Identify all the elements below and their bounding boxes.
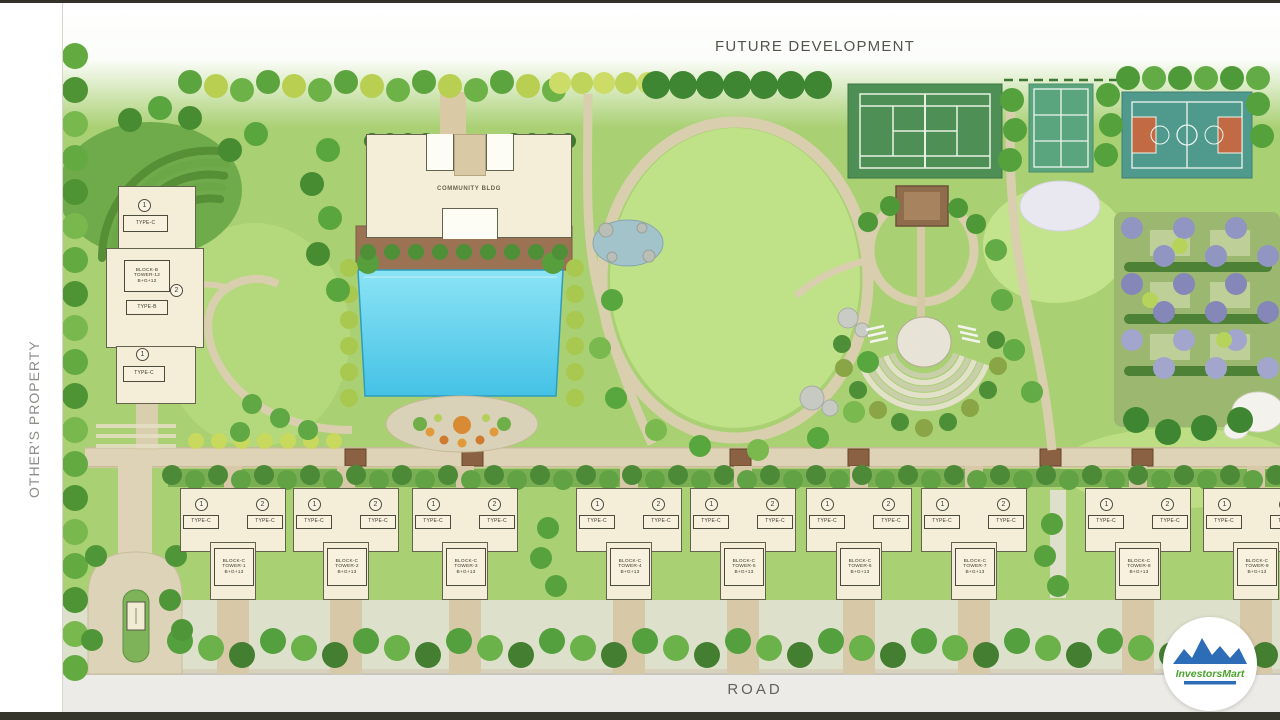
tower-block-label: BLOCK-CTOWER-9B+G+13 — [1237, 548, 1277, 586]
tree — [1225, 273, 1247, 295]
tree — [1168, 66, 1192, 90]
tree — [446, 628, 472, 654]
tree — [62, 485, 88, 511]
tree — [663, 635, 689, 661]
tree — [1153, 245, 1175, 267]
tree — [62, 383, 88, 409]
tree — [530, 547, 552, 569]
unit-marker: 2 — [997, 498, 1010, 511]
badminton-court — [1029, 84, 1093, 172]
tree — [843, 401, 865, 423]
driveway — [843, 592, 875, 674]
tree — [229, 642, 255, 668]
tree — [1047, 575, 1069, 597]
tree — [987, 331, 1005, 349]
tree — [723, 71, 751, 99]
pond — [593, 220, 663, 266]
tree — [553, 470, 573, 490]
tree — [1225, 217, 1247, 239]
tree — [528, 244, 544, 260]
building-notch — [442, 208, 498, 239]
unit-marker: 2 — [652, 498, 665, 511]
tree — [360, 74, 384, 98]
tree — [891, 413, 909, 431]
tower-block-label: BLOCK-CTOWER-6B+G+13 — [840, 548, 880, 586]
tree — [1142, 292, 1158, 308]
unit-marker: 1 — [936, 498, 949, 511]
unit-marker: 1 — [705, 498, 718, 511]
basketball-court — [1122, 92, 1252, 178]
tree — [178, 106, 202, 130]
tree — [967, 470, 987, 490]
tree — [1216, 332, 1232, 348]
tree — [537, 517, 559, 539]
tree — [566, 337, 584, 355]
letterbox-bottom — [0, 712, 1280, 720]
tree — [1194, 66, 1218, 90]
tree — [589, 337, 611, 359]
tree — [566, 285, 584, 303]
tree — [979, 381, 997, 399]
unit-type-label: TYPE-C — [360, 515, 396, 529]
tree — [280, 433, 296, 449]
tree — [392, 465, 412, 485]
tree — [566, 311, 584, 329]
tree — [260, 628, 286, 654]
tree — [326, 278, 350, 302]
tree — [242, 394, 262, 414]
tower-block-label: BLOCK-B TOWER-12 B+G+12 — [124, 260, 170, 292]
tree — [645, 419, 667, 441]
tower-building: 12TYPE-CTYPE-CBLOCK-CTOWER-3B+G+13 — [412, 488, 518, 600]
tree — [1220, 66, 1244, 90]
tree — [360, 244, 376, 260]
tree — [230, 422, 250, 442]
unit-type-label: TYPE-C — [1270, 515, 1280, 529]
tree — [340, 363, 358, 381]
tree — [566, 363, 584, 381]
tree — [62, 145, 88, 171]
tree — [545, 575, 567, 597]
tower-building: 12TYPE-CTYPE-CBLOCK-CTOWER-4B+G+13 — [576, 488, 682, 600]
tree — [998, 148, 1022, 172]
tree — [849, 635, 875, 661]
tree — [1128, 635, 1154, 661]
unit-marker: 1 — [1218, 498, 1231, 511]
driveway — [1122, 592, 1154, 674]
tree — [353, 628, 379, 654]
tower-block-label: BLOCK-CTOWER-8B+G+13 — [1119, 548, 1159, 586]
tree — [1041, 513, 1063, 535]
tower-building: 12TYPE-CTYPE-CBLOCK-CTOWER-8B+G+13 — [1085, 488, 1191, 600]
block-label-line: B+G+13 — [734, 570, 753, 576]
tree — [1121, 217, 1143, 239]
block-label-line: B+G+13 — [965, 570, 984, 576]
tree — [806, 465, 826, 485]
unit-type-label: TYPE-C — [873, 515, 909, 529]
tree — [966, 214, 986, 234]
tree — [1123, 407, 1149, 433]
tree — [1000, 88, 1024, 112]
block-label-line: B+G+13 — [850, 570, 869, 576]
tree — [750, 71, 778, 99]
unit-marker: 2 — [256, 498, 269, 511]
tree — [1227, 407, 1253, 433]
tree — [432, 244, 448, 260]
tree — [1121, 329, 1143, 351]
tree — [300, 465, 320, 485]
unit-marker: 1 — [591, 498, 604, 511]
unit-marker: 2 — [369, 498, 382, 511]
tree — [218, 138, 242, 162]
unit-type-label: TYPE-C — [479, 515, 515, 529]
tree — [1035, 635, 1061, 661]
tree — [62, 77, 88, 103]
unit-marker: 2 — [882, 498, 895, 511]
tree — [725, 628, 751, 654]
tree — [1205, 301, 1227, 323]
tree — [1003, 339, 1025, 361]
tree — [622, 465, 642, 485]
tree — [869, 401, 887, 419]
tree — [944, 465, 964, 485]
tree — [171, 619, 193, 641]
tree — [306, 242, 330, 266]
unit-marker: 1 — [427, 498, 440, 511]
tree — [915, 419, 933, 437]
main-walkway — [85, 447, 1280, 468]
tree — [318, 206, 342, 230]
tree — [1099, 113, 1123, 137]
road-surface — [62, 674, 1280, 714]
community-entry-path — [440, 92, 466, 138]
tree — [504, 244, 520, 260]
tree — [198, 635, 224, 661]
tree — [461, 470, 481, 490]
block-label-line: B+G+13 — [456, 570, 475, 576]
tree — [484, 465, 504, 485]
tree — [642, 71, 670, 99]
road-label: ROAD — [695, 681, 815, 698]
tree — [1142, 66, 1166, 90]
left-tower-building: 1 TYPE-C BLOCK-B TOWER-12 B+G+12 TYPE-B … — [106, 186, 204, 404]
tree — [1173, 273, 1195, 295]
building-notch — [486, 134, 514, 171]
oval-plaza — [1020, 181, 1100, 231]
tree — [973, 642, 999, 668]
tree — [322, 642, 348, 668]
tree — [62, 519, 88, 545]
tree — [756, 635, 782, 661]
unit-marker: 2 — [766, 498, 779, 511]
tree — [256, 70, 280, 94]
unit-marker: 1 — [821, 498, 834, 511]
unit-type-label: TYPE-C — [809, 515, 845, 529]
tree — [1116, 66, 1140, 90]
letterbox-top — [0, 0, 1280, 3]
others-property-label: OTHER'S PROPERTY — [26, 268, 48, 498]
tree — [62, 111, 88, 137]
tree — [1121, 273, 1143, 295]
tree — [308, 78, 332, 102]
tree — [601, 289, 623, 311]
investorsmart-logo: InvestorsMart — [1163, 617, 1257, 711]
tree — [669, 71, 697, 99]
unit-type-label: TYPE-C — [1206, 515, 1242, 529]
tree — [257, 433, 273, 449]
unit-marker: 2 — [1161, 498, 1174, 511]
tree — [760, 465, 780, 485]
tree — [898, 465, 918, 485]
tower-building: 12TYPE-CTYPE-CBLOCK-CTOWER-2B+G+13 — [293, 488, 399, 600]
tree — [291, 635, 317, 661]
tree — [508, 642, 534, 668]
swimming-pool — [358, 270, 563, 396]
tree — [384, 635, 410, 661]
community-building-label: COMMUNITY BLDG — [366, 186, 572, 192]
court-key — [1132, 117, 1156, 153]
tree — [188, 433, 204, 449]
tree — [1205, 245, 1227, 267]
tree — [300, 172, 324, 196]
block-label-line: B+G+13 — [337, 570, 356, 576]
tree — [857, 351, 879, 373]
tree — [1036, 465, 1056, 485]
tower-building: 12TYPE-CTYPE-CBLOCK-CTOWER-9B+G+13 — [1203, 488, 1280, 600]
tree — [818, 628, 844, 654]
tree — [783, 470, 803, 490]
tower-block-label: BLOCK-CTOWER-2B+G+13 — [327, 548, 367, 586]
tree — [571, 72, 593, 94]
tree — [1257, 245, 1279, 267]
unit-type-label: TYPE-C — [579, 515, 615, 529]
tree — [334, 70, 358, 94]
block-label-line: B+G+13 — [224, 570, 243, 576]
future-development-label: FUTURE DEVELOPMENT — [710, 38, 920, 55]
tree — [985, 239, 1007, 261]
tree — [737, 470, 757, 490]
logo-underline — [1184, 681, 1236, 685]
tree — [942, 635, 968, 661]
tree — [1096, 83, 1120, 107]
unit-marker: 1 — [308, 498, 321, 511]
tree — [615, 72, 637, 94]
tree — [1153, 357, 1175, 379]
tree — [326, 433, 342, 449]
tower-building: 12TYPE-CTYPE-CBLOCK-CTOWER-7B+G+13 — [921, 488, 1027, 600]
tree — [833, 335, 851, 353]
tree — [787, 642, 813, 668]
tree — [162, 465, 182, 485]
tree — [1250, 124, 1274, 148]
tree — [369, 470, 389, 490]
block-label-line: B+G+12 — [137, 279, 156, 285]
tree — [1066, 642, 1092, 668]
tree — [62, 281, 88, 307]
tree — [1097, 628, 1123, 654]
tree — [1105, 470, 1125, 490]
tree — [244, 122, 268, 146]
tree — [386, 78, 410, 102]
tower-block-label: BLOCK-CTOWER-5B+G+13 — [724, 548, 764, 586]
tree — [81, 629, 103, 651]
tree — [490, 70, 514, 94]
tree — [1246, 66, 1270, 90]
tree — [566, 389, 584, 407]
tree — [539, 628, 565, 654]
tree — [415, 470, 435, 490]
tree — [601, 642, 627, 668]
tree — [204, 74, 228, 98]
tree — [1220, 465, 1240, 485]
unit-type-label: TYPE-C — [247, 515, 283, 529]
tower-block-label: BLOCK-CTOWER-1B+G+13 — [214, 548, 254, 586]
tree — [316, 138, 340, 162]
tree — [880, 642, 906, 668]
court-key — [1218, 117, 1242, 153]
tree — [384, 244, 400, 260]
tree — [1021, 381, 1043, 403]
tree — [1197, 470, 1217, 490]
tree — [1191, 415, 1217, 441]
tower-building: 12TYPE-CTYPE-CBLOCK-CTOWER-1B+G+13 — [180, 488, 286, 600]
tree — [62, 587, 88, 613]
tree — [570, 635, 596, 661]
tree — [777, 71, 805, 99]
tree — [340, 311, 358, 329]
tree — [1246, 92, 1270, 116]
tree — [1094, 143, 1118, 167]
tree — [480, 244, 496, 260]
unit-type-label: TYPE-C — [183, 515, 219, 529]
tree — [852, 465, 872, 485]
tree — [148, 96, 172, 120]
tree — [829, 470, 849, 490]
building-notch — [426, 134, 454, 171]
block-label-line: B+G+13 — [1247, 570, 1266, 576]
unit-type-label: TYPE-C — [296, 515, 332, 529]
community-building: COMMUNITY BLDG — [366, 134, 572, 238]
tree — [849, 381, 867, 399]
unit-type-label: TYPE-C — [924, 515, 960, 529]
tree — [62, 553, 88, 579]
tree — [230, 78, 254, 102]
tree — [62, 417, 88, 443]
tree — [1205, 357, 1227, 379]
tree — [277, 470, 297, 490]
tree — [632, 628, 658, 654]
tree — [282, 74, 306, 98]
tree — [118, 108, 142, 132]
tree — [694, 642, 720, 668]
block-label-line: B+G+13 — [1129, 570, 1148, 576]
unit-marker: 1 — [1100, 498, 1113, 511]
tree — [1082, 465, 1102, 485]
tree — [323, 470, 343, 490]
tree — [668, 465, 688, 485]
tree — [178, 70, 202, 94]
tree — [507, 470, 527, 490]
unit-type-label: TYPE-C — [123, 215, 168, 232]
tower-building: 12TYPE-CTYPE-CBLOCK-CTOWER-5B+G+13 — [690, 488, 796, 600]
unit-marker: 1 — [138, 199, 151, 212]
tree — [340, 259, 358, 277]
tree — [1172, 238, 1188, 254]
tree — [1004, 628, 1030, 654]
tree — [62, 43, 88, 69]
top-fade — [62, 3, 1280, 128]
tree — [1257, 301, 1279, 323]
tree — [804, 71, 832, 99]
unit-marker: 1 — [136, 348, 149, 361]
pavilion — [896, 186, 948, 226]
tree — [438, 465, 458, 485]
tree — [62, 247, 88, 273]
tower-block-label: BLOCK-CTOWER-4B+G+13 — [610, 548, 650, 586]
tree — [62, 315, 88, 341]
tree — [552, 244, 568, 260]
tree — [691, 470, 711, 490]
tree — [1034, 545, 1056, 567]
tree — [948, 198, 968, 218]
logo-graphic: InvestorsMart — [1163, 617, 1257, 711]
building-entry — [454, 134, 486, 176]
tree — [408, 244, 424, 260]
tree — [1243, 470, 1263, 490]
tree — [62, 451, 88, 477]
tree — [159, 589, 181, 611]
tree — [714, 465, 734, 485]
tree — [464, 78, 488, 102]
tree — [605, 387, 627, 409]
tree — [921, 470, 941, 490]
tree — [340, 389, 358, 407]
tree — [254, 465, 274, 485]
tree — [593, 72, 615, 94]
unit-type-label: TYPE-C — [123, 366, 165, 382]
tree — [1174, 465, 1194, 485]
tree — [1003, 118, 1027, 142]
tree — [412, 70, 436, 94]
site-plan: COMMUNITY BLDG 1 TYPE-C BLOCK-B TOWER-12… — [0, 0, 1280, 720]
tree — [62, 213, 88, 239]
tree — [62, 349, 88, 375]
tree — [211, 433, 227, 449]
tower-block-label: BLOCK-CTOWER-7B+G+13 — [955, 548, 995, 586]
tree — [880, 196, 900, 216]
tree — [807, 427, 829, 449]
tree — [911, 628, 937, 654]
tree — [689, 435, 711, 457]
tree — [1173, 217, 1195, 239]
tree — [1013, 470, 1033, 490]
unit-type-label: TYPE-C — [988, 515, 1024, 529]
unit-type-label: TYPE-C — [643, 515, 679, 529]
tree — [1151, 470, 1171, 490]
tree — [456, 244, 472, 260]
tree — [696, 71, 724, 99]
unit-marker: 2 — [488, 498, 501, 511]
logo-mountains — [1173, 638, 1247, 664]
tree — [835, 359, 853, 377]
tree — [1155, 419, 1181, 445]
tree — [939, 413, 957, 431]
tree — [62, 655, 88, 681]
tree — [566, 259, 584, 277]
tower-building: 12TYPE-CTYPE-CBLOCK-CTOWER-6B+G+13 — [806, 488, 912, 600]
block-label-line: B+G+13 — [620, 570, 639, 576]
tree — [961, 399, 979, 417]
